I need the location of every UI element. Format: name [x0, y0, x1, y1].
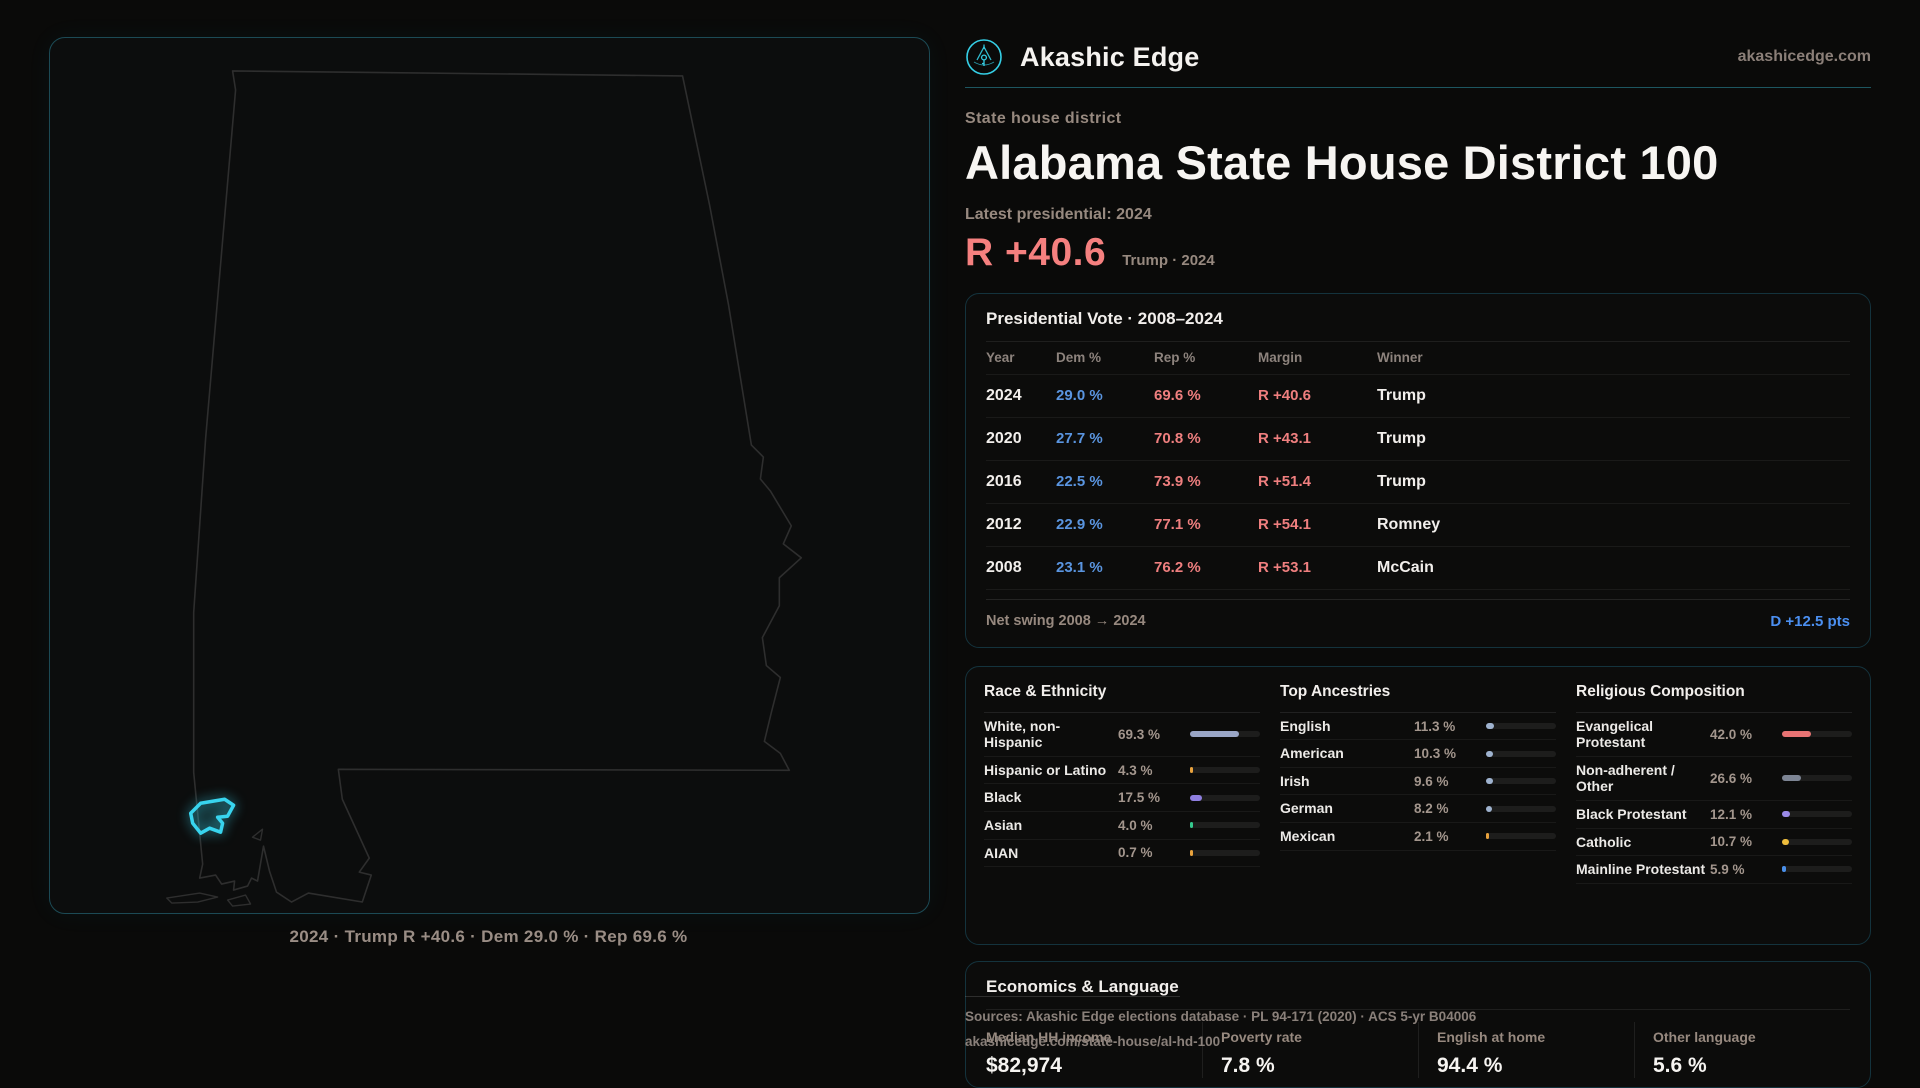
- cell-margin: R +40.6: [1258, 387, 1377, 404]
- stat-bar-track: [1190, 850, 1260, 856]
- coastal-island: [167, 893, 218, 903]
- page-title: Alabama State House District 100: [965, 136, 1871, 190]
- cell-winner: McCain: [1377, 559, 1850, 577]
- ancestries-column-title: Top Ancestries: [1280, 683, 1556, 713]
- cell-dem-pct: 27.7 %: [1056, 430, 1154, 447]
- cell-rep-pct: 76.2 %: [1154, 559, 1258, 576]
- district-highlight[interactable]: [191, 799, 234, 833]
- economics-stat: English at home 94.4 %: [1418, 1022, 1634, 1078]
- stat-bar-track: [1486, 723, 1556, 729]
- stat-value: 5.9 %: [1710, 862, 1782, 877]
- economics-panel-title: Economics & Language: [986, 977, 1850, 997]
- stat-label: Non-adherent / Other: [1576, 762, 1710, 795]
- demographics-panel: Race & Ethnicity White, non-Hispanic 69.…: [965, 666, 1871, 945]
- stat-value: 11.3 %: [1414, 719, 1486, 734]
- stat-value: 10.3 %: [1414, 746, 1486, 761]
- stat-row: Hispanic or Latino 4.3 %: [984, 757, 1260, 785]
- district-dashboard: 2024 · Trump R +40.6 · Dem 29.0 % · Rep …: [0, 0, 1920, 1080]
- sources-permalink: akashicedge.com/state-house/al-hd-100: [965, 1030, 1180, 1055]
- race-ethnicity-column: Race & Ethnicity White, non-Hispanic 69.…: [984, 683, 1260, 928]
- cell-winner: Trump: [1377, 430, 1850, 448]
- stat-bar-track: [1190, 767, 1260, 773]
- stat-bar-fill: [1782, 811, 1790, 817]
- presidential-vote-panel: Presidential Vote · 2008–2024 Year Dem %…: [965, 293, 1871, 648]
- stat-row: Catholic 10.7 %: [1576, 829, 1852, 857]
- stat-value: 4.3 %: [1118, 763, 1190, 778]
- stat-bar-track: [1486, 806, 1556, 812]
- stat-bar-track: [1782, 731, 1852, 737]
- stat-row: German 8.2 %: [1280, 795, 1556, 823]
- stat-value: 26.6 %: [1710, 771, 1782, 786]
- akashic-logo-icon: [965, 38, 1003, 76]
- stat-bar-track: [1782, 866, 1852, 872]
- headline-margin-caption: Trump · 2024: [1122, 252, 1215, 269]
- latest-presidential-label: Latest presidential: 2024: [965, 206, 1871, 224]
- sources-line: Sources: Akashic Edge elections database…: [965, 1005, 1180, 1030]
- table-row: 2016 22.5 % 73.9 % R +51.4 Trump: [986, 460, 1850, 503]
- stat-bar-fill: [1190, 731, 1239, 737]
- stat-row: White, non-Hispanic 69.3 %: [984, 713, 1260, 757]
- stat-value: 8.2 %: [1414, 801, 1486, 816]
- stat-bar-track: [1782, 811, 1852, 817]
- economics-stat-value: 94.4 %: [1437, 1054, 1634, 1078]
- cell-margin: R +43.1: [1258, 430, 1377, 447]
- stat-row: Black 17.5 %: [984, 784, 1260, 812]
- headline-margin-row: R +40.6 Trump · 2024: [965, 232, 1871, 275]
- religion-column: Religious Composition Evangelical Protes…: [1576, 683, 1852, 928]
- cell-year: 2024: [986, 387, 1056, 405]
- col-header-winner: Winner: [1377, 350, 1850, 365]
- cell-year: 2008: [986, 559, 1056, 577]
- economics-stat-label: English at home: [1437, 1029, 1634, 1045]
- stat-label: Black Protestant: [1576, 806, 1710, 823]
- cell-rep-pct: 70.8 %: [1154, 430, 1258, 447]
- brand-name: Akashic Edge: [1020, 42, 1199, 73]
- alabama-map: [50, 38, 927, 911]
- presidential-panel-title: Presidential Vote · 2008–2024: [986, 309, 1850, 329]
- religion-column-title: Religious Composition: [1576, 683, 1852, 713]
- stat-row: Asian 4.0 %: [984, 812, 1260, 840]
- economics-stat-value: 7.8 %: [1221, 1054, 1418, 1078]
- district-type-kicker: State house district: [965, 110, 1871, 128]
- stat-label: Catholic: [1576, 834, 1710, 851]
- table-row: 2024 29.0 % 69.6 % R +40.6 Trump: [986, 374, 1850, 417]
- stat-value: 10.7 %: [1710, 834, 1782, 849]
- cell-winner: Romney: [1377, 516, 1850, 534]
- net-swing-row: Net swing 2008 → 2024 D +12.5 pts: [986, 599, 1850, 635]
- stat-bar-track: [1486, 778, 1556, 784]
- stat-row: Mexican 2.1 %: [1280, 823, 1556, 851]
- stat-value: 2.1 %: [1414, 829, 1486, 844]
- table-row: 2012 22.9 % 77.1 % R +54.1 Romney: [986, 503, 1850, 546]
- stat-label: White, non-Hispanic: [984, 718, 1118, 751]
- cell-year: 2020: [986, 430, 1056, 448]
- economics-stat-label: Poverty rate: [1221, 1029, 1418, 1045]
- col-header-dem: Dem %: [1056, 350, 1154, 365]
- stat-bar-fill: [1782, 775, 1801, 781]
- stat-value: 42.0 %: [1710, 727, 1782, 742]
- net-swing-label: Net swing 2008 → 2024: [986, 613, 1146, 629]
- stat-value: 69.3 %: [1118, 727, 1190, 742]
- stat-label: AIAN: [984, 845, 1118, 862]
- stat-value: 9.6 %: [1414, 774, 1486, 789]
- stat-label: English: [1280, 718, 1414, 735]
- stat-bar-fill: [1190, 767, 1193, 773]
- header-divider: [965, 87, 1871, 88]
- coastal-island: [228, 895, 251, 906]
- religion-rows: Evangelical Protestant 42.0 % Non-adhere…: [1576, 713, 1852, 884]
- net-swing-value: D +12.5 pts: [1770, 613, 1850, 630]
- cell-margin: R +51.4: [1258, 473, 1377, 490]
- stat-bar-fill: [1782, 866, 1786, 872]
- cell-year: 2016: [986, 473, 1056, 491]
- cell-winner: Trump: [1377, 387, 1850, 405]
- race-column-title: Race & Ethnicity: [984, 683, 1260, 713]
- table-body: 2024 29.0 % 69.6 % R +40.6 Trump 2020 27…: [986, 374, 1850, 590]
- stat-bar-fill: [1782, 731, 1811, 737]
- site-domain-link[interactable]: akashicedge.com: [1738, 48, 1871, 66]
- stat-label: Black: [984, 789, 1118, 806]
- stat-label: Mexican: [1280, 828, 1414, 845]
- economics-stat: Poverty rate 7.8 %: [1202, 1022, 1418, 1078]
- stat-label: Hispanic or Latino: [984, 762, 1118, 779]
- stat-row: AIAN 0.7 %: [984, 840, 1260, 868]
- cell-dem-pct: 22.9 %: [1056, 516, 1154, 533]
- stat-row: American 10.3 %: [1280, 740, 1556, 768]
- economics-stat-value: $82,974: [986, 1054, 1202, 1078]
- site-header: Akashic Edge akashicedge.com: [965, 36, 1871, 78]
- stat-row: Non-adherent / Other 26.6 %: [1576, 757, 1852, 801]
- detail-column: Akashic Edge akashicedge.com State house…: [965, 0, 1871, 1088]
- stat-label: Asian: [984, 817, 1118, 834]
- sources-footer: Sources: Akashic Edge elections database…: [965, 996, 1180, 1055]
- stat-value: 17.5 %: [1118, 790, 1190, 805]
- stat-bar-fill: [1486, 751, 1493, 757]
- stat-value: 0.7 %: [1118, 845, 1190, 860]
- ancestries-column: Top Ancestries English 11.3 % Am: [1280, 683, 1556, 928]
- cell-winner: Trump: [1377, 473, 1850, 491]
- alabama-outline: [194, 71, 802, 902]
- stat-bar-track: [1782, 839, 1852, 845]
- stat-label: American: [1280, 745, 1414, 762]
- stat-value: 4.0 %: [1118, 818, 1190, 833]
- cell-rep-pct: 73.9 %: [1154, 473, 1258, 490]
- cell-dem-pct: 22.5 %: [1056, 473, 1154, 490]
- stat-label: Mainline Protestant: [1576, 861, 1710, 878]
- stat-bar-track: [1190, 731, 1260, 737]
- cell-rep-pct: 77.1 %: [1154, 516, 1258, 533]
- race-rows: White, non-Hispanic 69.3 % Hispanic or L…: [984, 713, 1260, 867]
- stat-label: German: [1280, 800, 1414, 817]
- delta-detail: [253, 829, 263, 840]
- cell-margin: R +54.1: [1258, 516, 1377, 533]
- stat-row: Evangelical Protestant 42.0 %: [1576, 713, 1852, 757]
- table-header: Year Dem % Rep % Margin Winner: [986, 342, 1850, 374]
- map-panel: [49, 37, 930, 914]
- stat-bar-fill: [1486, 778, 1493, 784]
- stat-bar-track: [1190, 822, 1260, 828]
- stat-label: Irish: [1280, 773, 1414, 790]
- stat-row: English 11.3 %: [1280, 713, 1556, 741]
- economics-stat-label: Other language: [1653, 1029, 1850, 1045]
- stat-bar-fill: [1190, 822, 1193, 828]
- cell-dem-pct: 29.0 %: [1056, 387, 1154, 404]
- col-header-margin: Margin: [1258, 350, 1377, 365]
- stat-bar-track: [1782, 775, 1852, 781]
- stat-row: Mainline Protestant 5.9 %: [1576, 856, 1852, 884]
- table-row: 2008 23.1 % 76.2 % R +53.1 McCain: [986, 546, 1850, 589]
- stat-value: 12.1 %: [1710, 807, 1782, 822]
- stat-row: Irish 9.6 %: [1280, 768, 1556, 796]
- stat-bar-track: [1190, 795, 1260, 801]
- stat-bar-track: [1486, 833, 1556, 839]
- stat-bar-fill: [1486, 806, 1492, 812]
- stat-bar-fill: [1486, 723, 1494, 729]
- cell-rep-pct: 69.6 %: [1154, 387, 1258, 404]
- cell-margin: R +53.1: [1258, 559, 1377, 576]
- economics-stat: Other language 5.6 %: [1634, 1022, 1850, 1078]
- stat-bar-track: [1486, 751, 1556, 757]
- cell-year: 2012: [986, 516, 1056, 534]
- cell-dem-pct: 23.1 %: [1056, 559, 1154, 576]
- headline-margin-value: R +40.6: [965, 232, 1106, 275]
- col-header-year: Year: [986, 350, 1056, 365]
- table-row: 2020 27.7 % 70.8 % R +43.1 Trump: [986, 417, 1850, 460]
- economics-stat-value: 5.6 %: [1653, 1054, 1850, 1078]
- map-caption: 2024 · Trump R +40.6 · Dem 29.0 % · Rep …: [49, 927, 928, 947]
- stat-bar-fill: [1190, 795, 1202, 801]
- stat-bar-fill: [1782, 839, 1789, 845]
- stat-row: Black Protestant 12.1 %: [1576, 801, 1852, 829]
- ancestry-rows: English 11.3 % American 10.3 %: [1280, 713, 1556, 851]
- stat-bar-fill: [1190, 850, 1193, 856]
- stat-bar-fill: [1486, 833, 1489, 839]
- stat-label: Evangelical Protestant: [1576, 718, 1710, 751]
- col-header-rep: Rep %: [1154, 350, 1258, 365]
